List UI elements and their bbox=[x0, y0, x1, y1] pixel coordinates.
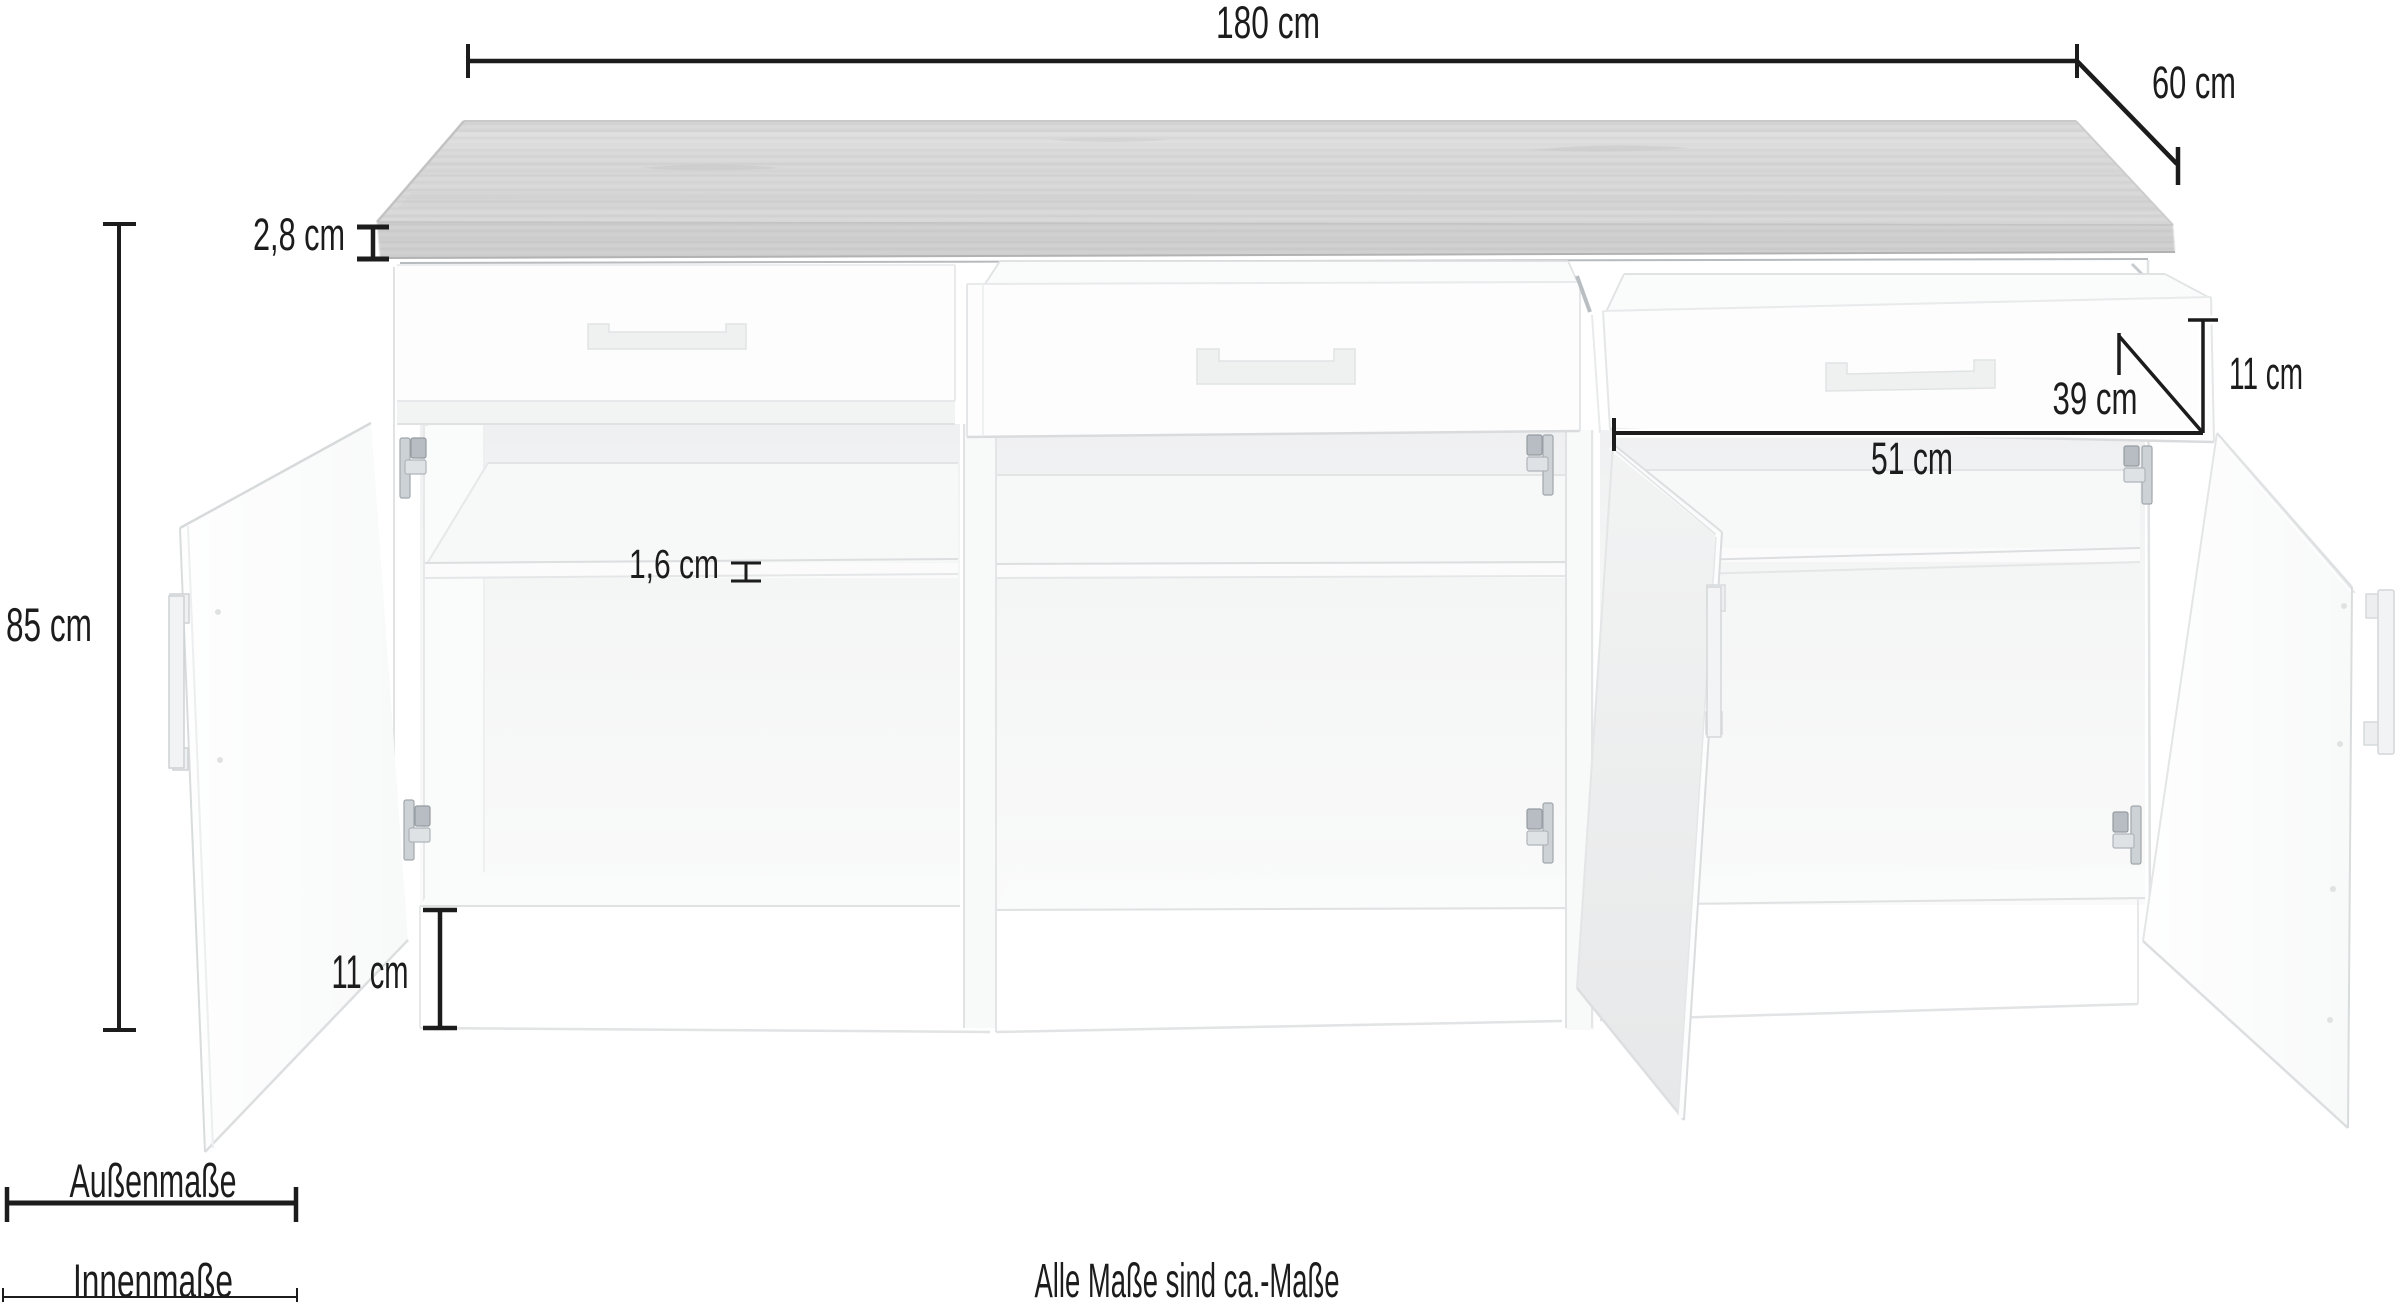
svg-text:Alle Maße sind ca.-Maße: Alle Maße sind ca.-Maße bbox=[1035, 1255, 1340, 1302]
svg-text:11 cm: 11 cm bbox=[332, 945, 409, 998]
svg-text:39 cm: 39 cm bbox=[2053, 373, 2138, 424]
svg-text:1,6 cm: 1,6 cm bbox=[629, 541, 719, 587]
svg-text:180 cm: 180 cm bbox=[1216, 0, 1320, 48]
svg-text:2,8 cm: 2,8 cm bbox=[253, 209, 345, 260]
svg-text:51 cm: 51 cm bbox=[1871, 433, 1953, 484]
svg-text:Innenmaße: Innenmaße bbox=[73, 1254, 233, 1302]
svg-text:85 cm: 85 cm bbox=[6, 598, 92, 651]
svg-text:60 cm: 60 cm bbox=[2152, 57, 2236, 108]
svg-text:Außenmaße: Außenmaße bbox=[70, 1154, 237, 1207]
svg-text:11 cm: 11 cm bbox=[2229, 348, 2303, 399]
